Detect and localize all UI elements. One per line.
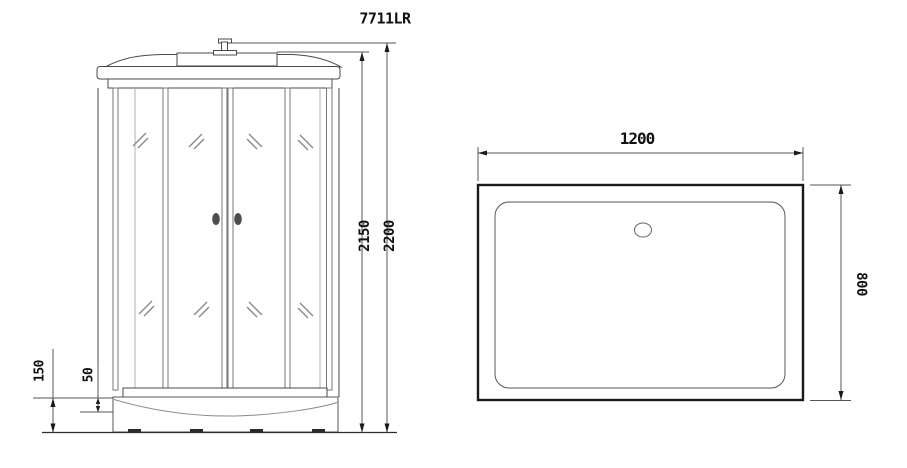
dim-label-800: 800 [854,272,868,296]
shower-head-icon [214,39,237,55]
left-door-handle [212,213,220,225]
technical-drawing-page: 7711LR 2150 2200 150 50 1200 800 [0,0,907,468]
right-door-handle [234,213,242,225]
tray-inner-rect [495,202,785,388]
dim-label-150: 150 [34,360,47,382]
bottom-track [123,388,327,397]
base-tray-front [113,397,338,432]
model-number-label: 7711LR [359,12,410,27]
roof-eave-band [97,67,340,80]
dim-label-2200: 2200 [383,220,397,252]
drain-icon [635,223,652,237]
tray-outer-rect [478,185,803,400]
shower-cabin-drawing [0,0,907,468]
top-view-drawing [478,185,803,400]
dim-label-2150: 2150 [358,220,372,252]
dim-label-50: 50 [83,368,96,383]
dim-label-1200: 1200 [620,131,655,147]
top-track [108,79,332,88]
